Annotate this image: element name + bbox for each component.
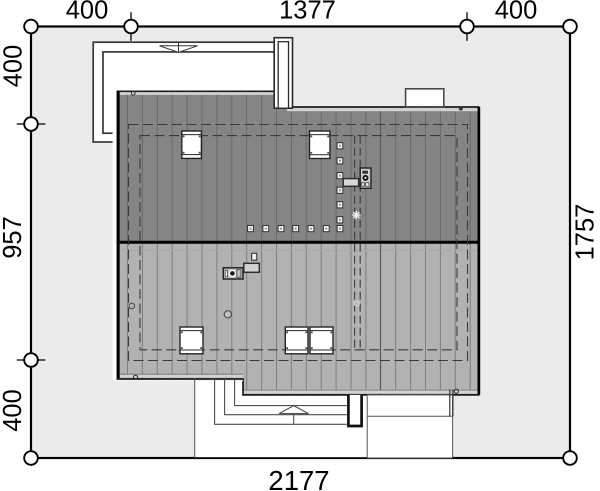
svg-text:400: 400 bbox=[0, 389, 27, 432]
svg-text:400: 400 bbox=[66, 0, 109, 25]
svg-text:957: 957 bbox=[0, 216, 27, 259]
svg-text:2177: 2177 bbox=[268, 465, 329, 491]
svg-text:400: 400 bbox=[495, 0, 538, 25]
svg-text:1377: 1377 bbox=[279, 0, 336, 25]
svg-text:1757: 1757 bbox=[572, 204, 600, 261]
svg-text:400: 400 bbox=[0, 45, 28, 88]
